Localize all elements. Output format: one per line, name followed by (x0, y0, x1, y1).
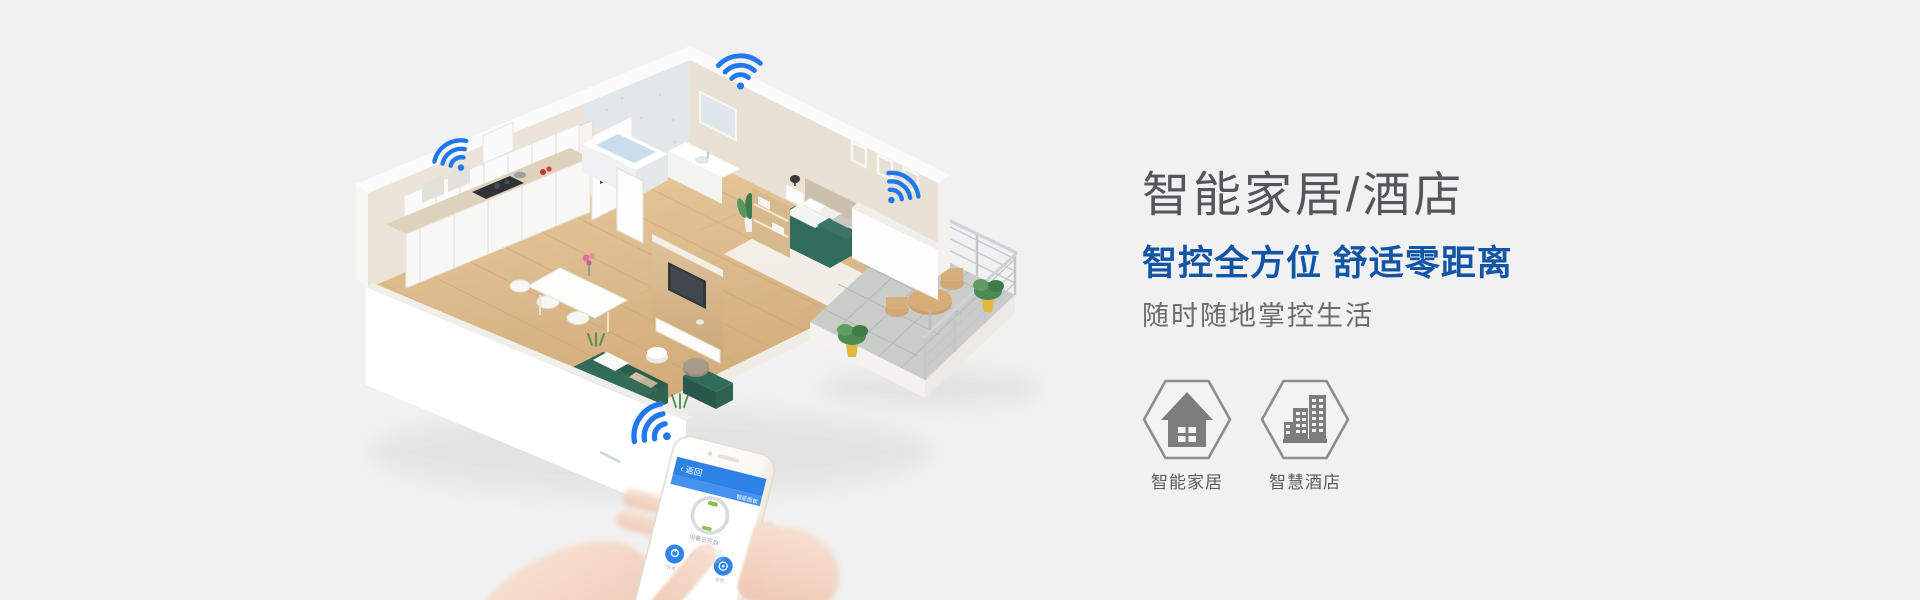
bathroom-door (617, 168, 643, 243)
hero-banner: ‹ 返回 智能面板 设备已开启 开关 (0, 0, 1920, 600)
hero-copy: 智能家居/酒店 智控全方位 舒适零距离 随时随地掌控生活 智能家居 (1142, 170, 1782, 493)
home-icon (1142, 379, 1232, 460)
category-smart-hotel[interactable]: 智慧酒店 (1260, 379, 1350, 493)
hotel-icon (1260, 379, 1350, 460)
page-title: 智能家居/酒店 (1142, 170, 1782, 223)
category-label-smart-home: 智能家居 (1151, 468, 1223, 493)
hero-tagline: 随时随地掌控生活 (1142, 300, 1782, 332)
category-list: 智能家居 (1142, 379, 1782, 493)
category-smart-home[interactable]: 智能家居 (1142, 379, 1232, 493)
hero-subtitle: 智控全方位 舒适零距离 (1142, 245, 1782, 284)
category-label-smart-hotel: 智慧酒店 (1269, 468, 1341, 493)
